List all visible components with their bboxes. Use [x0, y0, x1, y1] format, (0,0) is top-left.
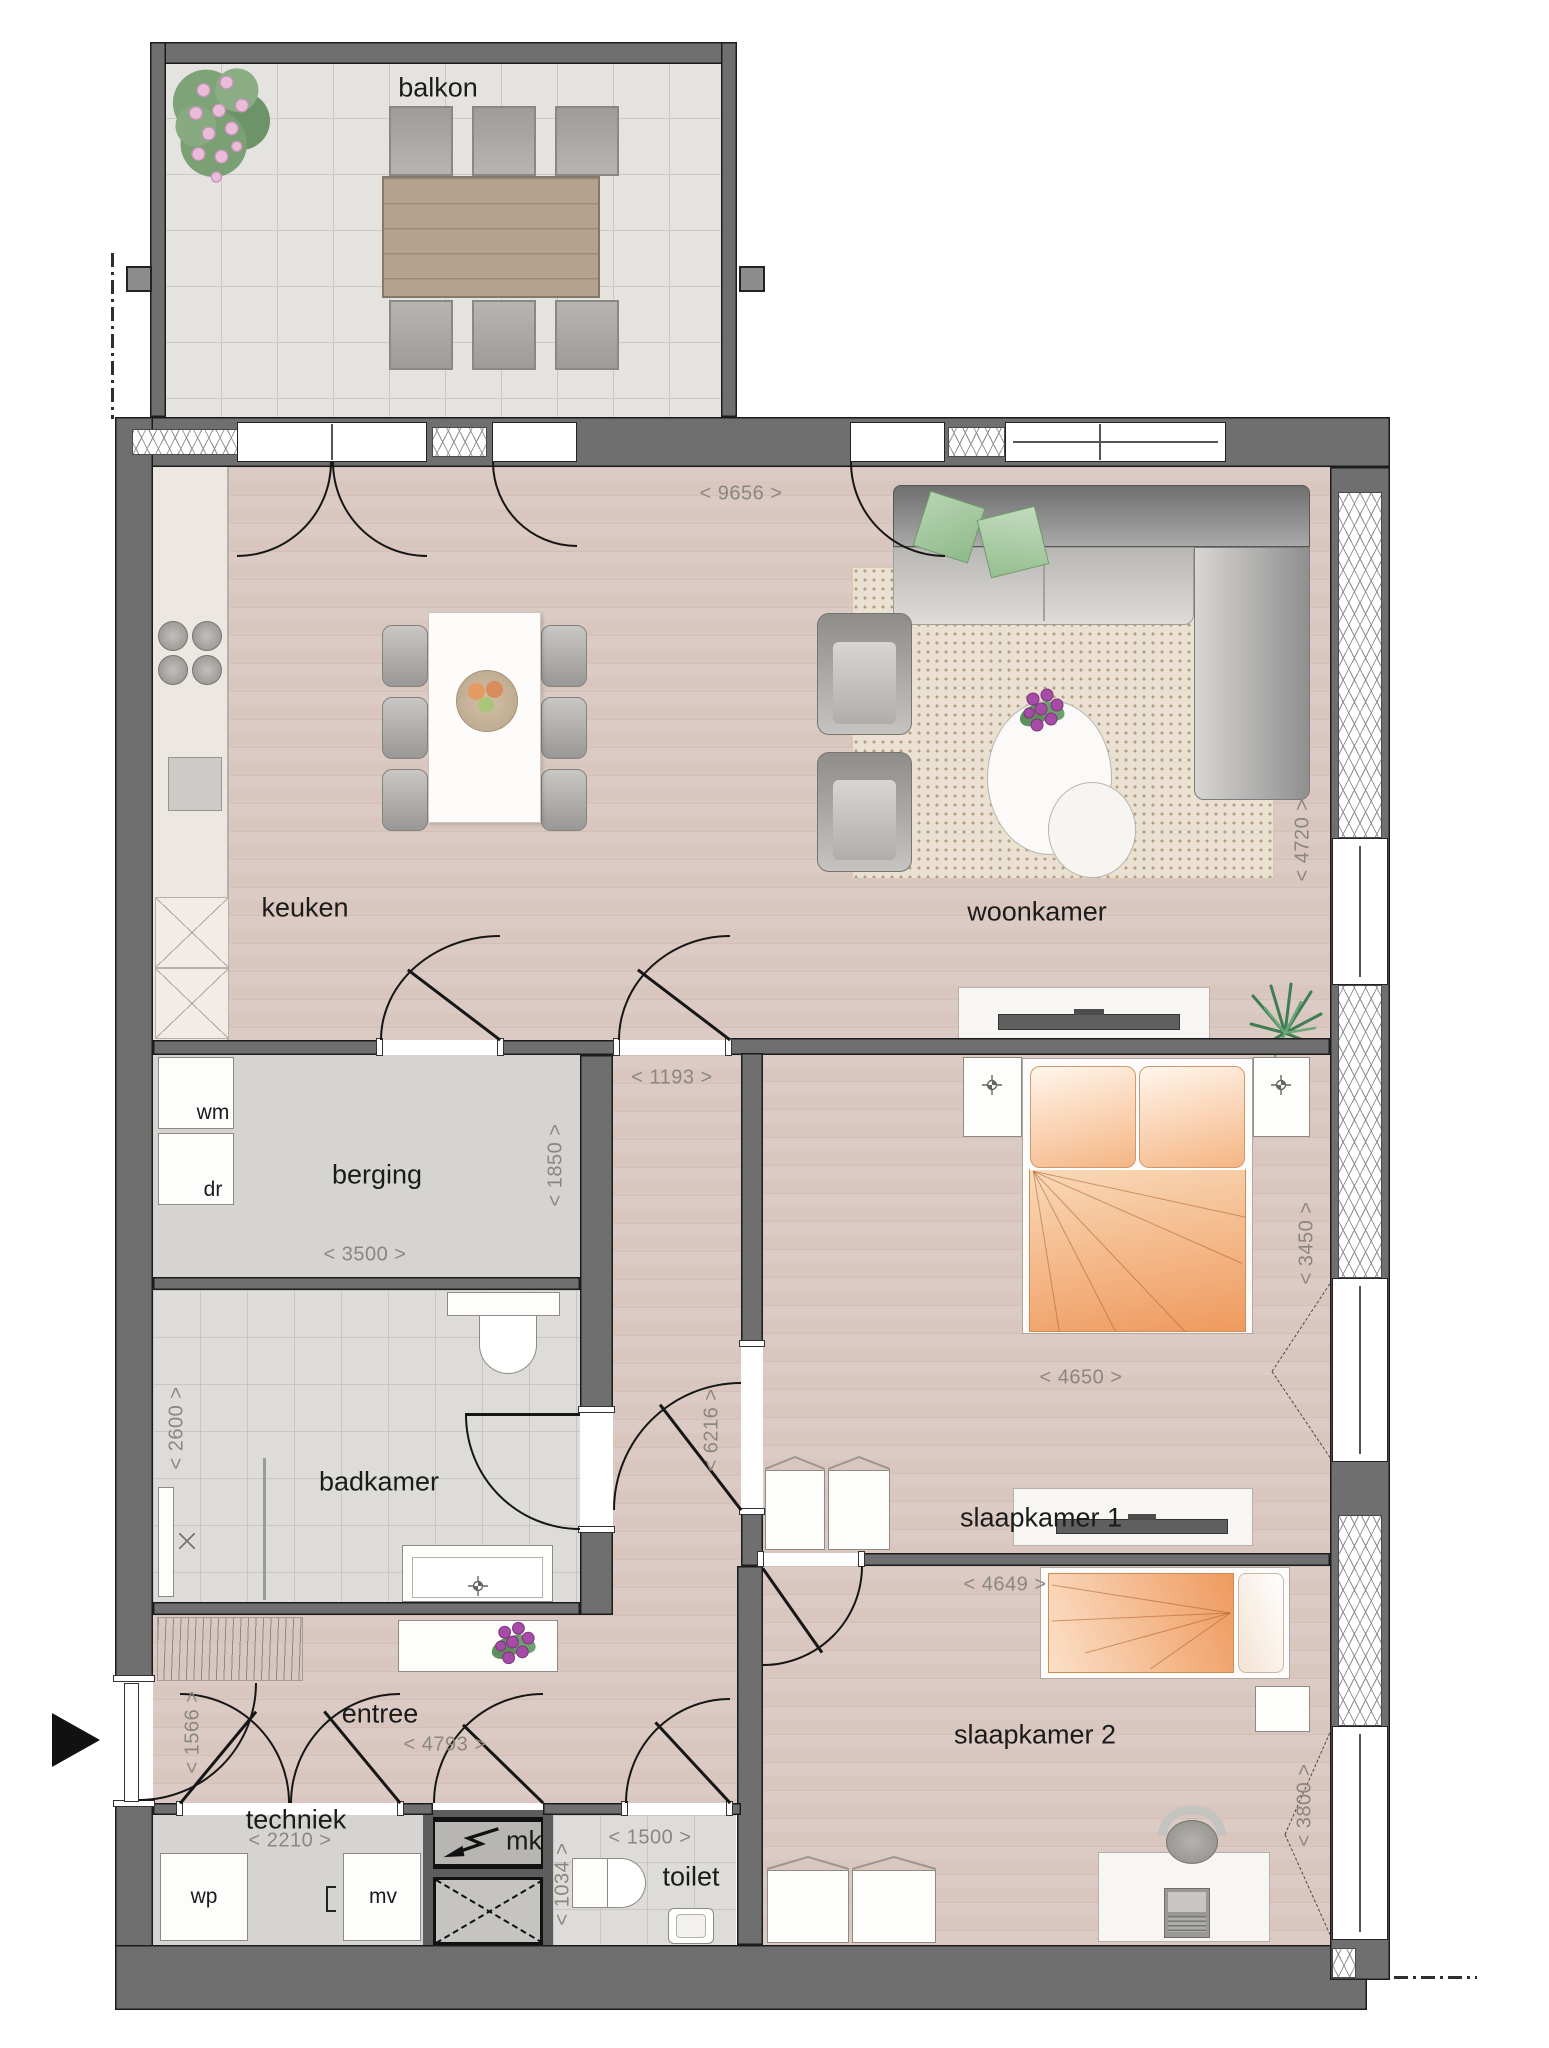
- dining-chair: [382, 697, 428, 759]
- toilet-bowl: [479, 1316, 537, 1374]
- wall-corridor-west-upper: [580, 1055, 613, 1412]
- dim-bedroom1-depth: < 3450 >: [1296, 1202, 1319, 1285]
- nightstand: [1253, 1057, 1310, 1137]
- bottom-wall-hatch: [1332, 1948, 1356, 1978]
- laptop-screen: [1168, 1892, 1206, 1912]
- wardrobe-rail-mark: [765, 1456, 825, 1470]
- wall-entree-south: [543, 1803, 625, 1815]
- wall-bedroom2-west: [737, 1566, 763, 1945]
- dining-chair: [382, 769, 428, 831]
- dining-chair: [382, 625, 428, 687]
- shower-screen: [263, 1458, 266, 1600]
- fruit: [486, 681, 503, 698]
- lamp-crosshair-icon: [1270, 1074, 1292, 1096]
- balcony-wall-left: [150, 42, 166, 417]
- floor-plan: balkon: [0, 0, 1549, 2048]
- living-room-label: woonkamer: [967, 897, 1107, 928]
- sofa-chaise: [1194, 547, 1310, 800]
- facade-pier-hatch: [432, 427, 487, 457]
- wall-living-storage: [500, 1040, 618, 1055]
- terrace-door: [850, 422, 945, 462]
- door-jamb: [739, 1508, 765, 1515]
- wall-bedroom1-bedroom2: [863, 1553, 1330, 1566]
- table-flowers: [1015, 685, 1070, 743]
- window-mullion: [1013, 441, 1218, 443]
- dim-storage-width: < 3500 >: [324, 1244, 407, 1267]
- dining-chair: [541, 697, 587, 759]
- ventilation-label: mv: [369, 1885, 397, 1909]
- dining-chair: [541, 769, 587, 831]
- lamp-crosshair-icon: [981, 1074, 1003, 1096]
- balcony-chair: [389, 106, 453, 176]
- cooktop-burner: [158, 621, 188, 651]
- wc-cistern: [572, 1858, 608, 1908]
- wardrobe-rail-mark: [852, 1856, 936, 1870]
- wall-corridor-east-upper: [741, 1053, 763, 1345]
- exterior-wall-left-upper: [115, 417, 153, 1680]
- dim-toilet-width: < 1500 >: [609, 1827, 692, 1850]
- dim-bathroom-depth: < 2600 >: [166, 1387, 189, 1470]
- heat-pump-label: wp: [191, 1885, 218, 1909]
- window-mullion: [1359, 846, 1361, 977]
- laptop-keyboard: [1168, 1916, 1206, 1932]
- right-wall-hatch: [1338, 492, 1382, 838]
- kitchen-label: keuken: [261, 893, 348, 924]
- wc-basin-inner: [676, 1914, 706, 1938]
- dim-storage-depth: < 1850 >: [545, 1124, 568, 1207]
- section-line-top-left: [111, 253, 114, 419]
- window-mullion: [1359, 1286, 1361, 1454]
- wardrobe-box: [852, 1870, 936, 1943]
- single-bed-pillow: [1238, 1573, 1284, 1673]
- doormat: [157, 1617, 303, 1681]
- nightstand: [1255, 1686, 1310, 1732]
- bed-pillow: [1139, 1066, 1245, 1168]
- wall-bathroom-entree: [153, 1602, 580, 1615]
- balcony-chair: [389, 300, 453, 370]
- door-jamb: [578, 1406, 615, 1413]
- dining-chair: [541, 625, 587, 687]
- dryer-label: dr: [204, 1178, 223, 1202]
- window-mullion: [1099, 424, 1101, 460]
- lounge-chair-seat: [833, 780, 896, 860]
- french-door-divider: [331, 424, 333, 460]
- dim-living-depth: < 4720 >: [1292, 799, 1315, 882]
- dim-bedroom2-depth: < 3800 >: [1294, 1764, 1317, 1847]
- cooktop-burner: [192, 655, 222, 685]
- door-jamb: [858, 1551, 865, 1567]
- wardrobe-rail-mark: [828, 1456, 890, 1470]
- door-jamb: [739, 1340, 765, 1347]
- tv-screen: [998, 1014, 1180, 1030]
- bed-pillow: [1030, 1066, 1136, 1168]
- dim-entree-width: < 4793 >: [404, 1734, 487, 1757]
- shower-drain-icon: [179, 1533, 195, 1549]
- lounge-chair-seat: [833, 642, 896, 724]
- door-jamb: [621, 1801, 628, 1816]
- dim-living-width: < 9656 >: [700, 483, 783, 506]
- sideboard-flowers: [487, 1616, 541, 1674]
- wardrobe-box: [767, 1870, 849, 1943]
- bathroom-label: badkamer: [319, 1467, 439, 1498]
- window-mullion: [1359, 1734, 1361, 1932]
- bedroom2-label: slaapkamer 2: [954, 1720, 1116, 1751]
- boundary-marker-left: [126, 266, 152, 292]
- fruit: [478, 697, 494, 713]
- washing-machine-label: wm: [197, 1101, 230, 1125]
- balcony-door: [492, 422, 577, 462]
- storage-label: berging: [332, 1160, 422, 1191]
- dim-corridor-depth: < 6216 >: [701, 1389, 724, 1472]
- dim-technical-width: < 2210 >: [249, 1830, 332, 1853]
- bathroom-door-leaf: [465, 1413, 580, 1416]
- door-jamb: [757, 1551, 764, 1567]
- dim-entree-depth: < 1566 >: [182, 1691, 205, 1774]
- balcony-label: balkon: [398, 73, 478, 104]
- door-jamb: [376, 1038, 383, 1056]
- facade-pier-hatch: [948, 427, 1005, 457]
- right-wall-hatch: [1338, 1515, 1382, 1726]
- cooktop-burner: [192, 621, 222, 651]
- wall-living-storage: [153, 1040, 380, 1055]
- kitchen-sink: [168, 757, 222, 811]
- wardrobe-rail-mark: [767, 1856, 849, 1870]
- right-wall-hatch: [1338, 985, 1382, 1278]
- wardrobe-box: [765, 1470, 825, 1550]
- dim-toilet-depth: < 1034 >: [552, 1843, 575, 1926]
- wall-corridor-west-lower: [580, 1528, 613, 1615]
- dim-hall-width: < 1193 >: [631, 1067, 712, 1090]
- balcony-wall-right: [721, 42, 737, 417]
- boundary-marker-right: [739, 266, 765, 292]
- duvet-fold-lines: [1029, 1168, 1246, 1332]
- dresser-tv-stand: [1128, 1514, 1156, 1520]
- balcony-chair: [555, 106, 619, 176]
- dryer: [158, 1133, 234, 1205]
- meter-cupboard-label: mk: [506, 1826, 542, 1857]
- corridor-floor: [613, 1055, 741, 1615]
- balcony-chair: [472, 106, 536, 176]
- balcony-plant: [160, 62, 288, 200]
- bathroom-radiator: [158, 1487, 174, 1597]
- balcony-chair: [555, 300, 619, 370]
- bracket-symbol: [326, 1886, 336, 1912]
- balcony-chair: [472, 300, 536, 370]
- dim-bedroom1-width: < 4650 >: [1040, 1367, 1123, 1390]
- faucet-crosshair-icon: [467, 1575, 489, 1597]
- balcony-wall-top: [150, 42, 737, 64]
- tv-stand: [1074, 1009, 1104, 1015]
- nightstand: [963, 1057, 1022, 1137]
- front-door-leaf: [124, 1683, 139, 1802]
- side-table: [1048, 782, 1136, 878]
- door-jamb: [578, 1526, 615, 1533]
- dim-bedroom2-width: < 4649 >: [964, 1574, 1047, 1597]
- meter-cupboard-arrow-icon: [438, 1822, 504, 1862]
- exterior-wall-bottom: [115, 1945, 1367, 2010]
- wall-storage-bathroom: [153, 1277, 580, 1290]
- toilet-label: toilet: [662, 1862, 719, 1893]
- duvet-fold-lines: [1048, 1573, 1234, 1673]
- door-jamb: [113, 1675, 155, 1682]
- toilet-cistern: [447, 1292, 560, 1316]
- balcony-table: [382, 176, 600, 298]
- wall-entree-south: [400, 1803, 433, 1815]
- door-jamb: [613, 1038, 620, 1056]
- entree-label: entree: [342, 1699, 419, 1730]
- entrance-arrow-icon: [52, 1713, 100, 1767]
- kitchen-tall-cabinet: [155, 968, 229, 1039]
- cooktop-burner: [158, 655, 188, 685]
- wardrobe-box: [828, 1470, 890, 1550]
- kitchen-tall-cabinet: [155, 897, 229, 968]
- wall-living-bedroom1: [730, 1038, 1330, 1055]
- bedroom1-label: slaapkamer 1: [960, 1503, 1122, 1534]
